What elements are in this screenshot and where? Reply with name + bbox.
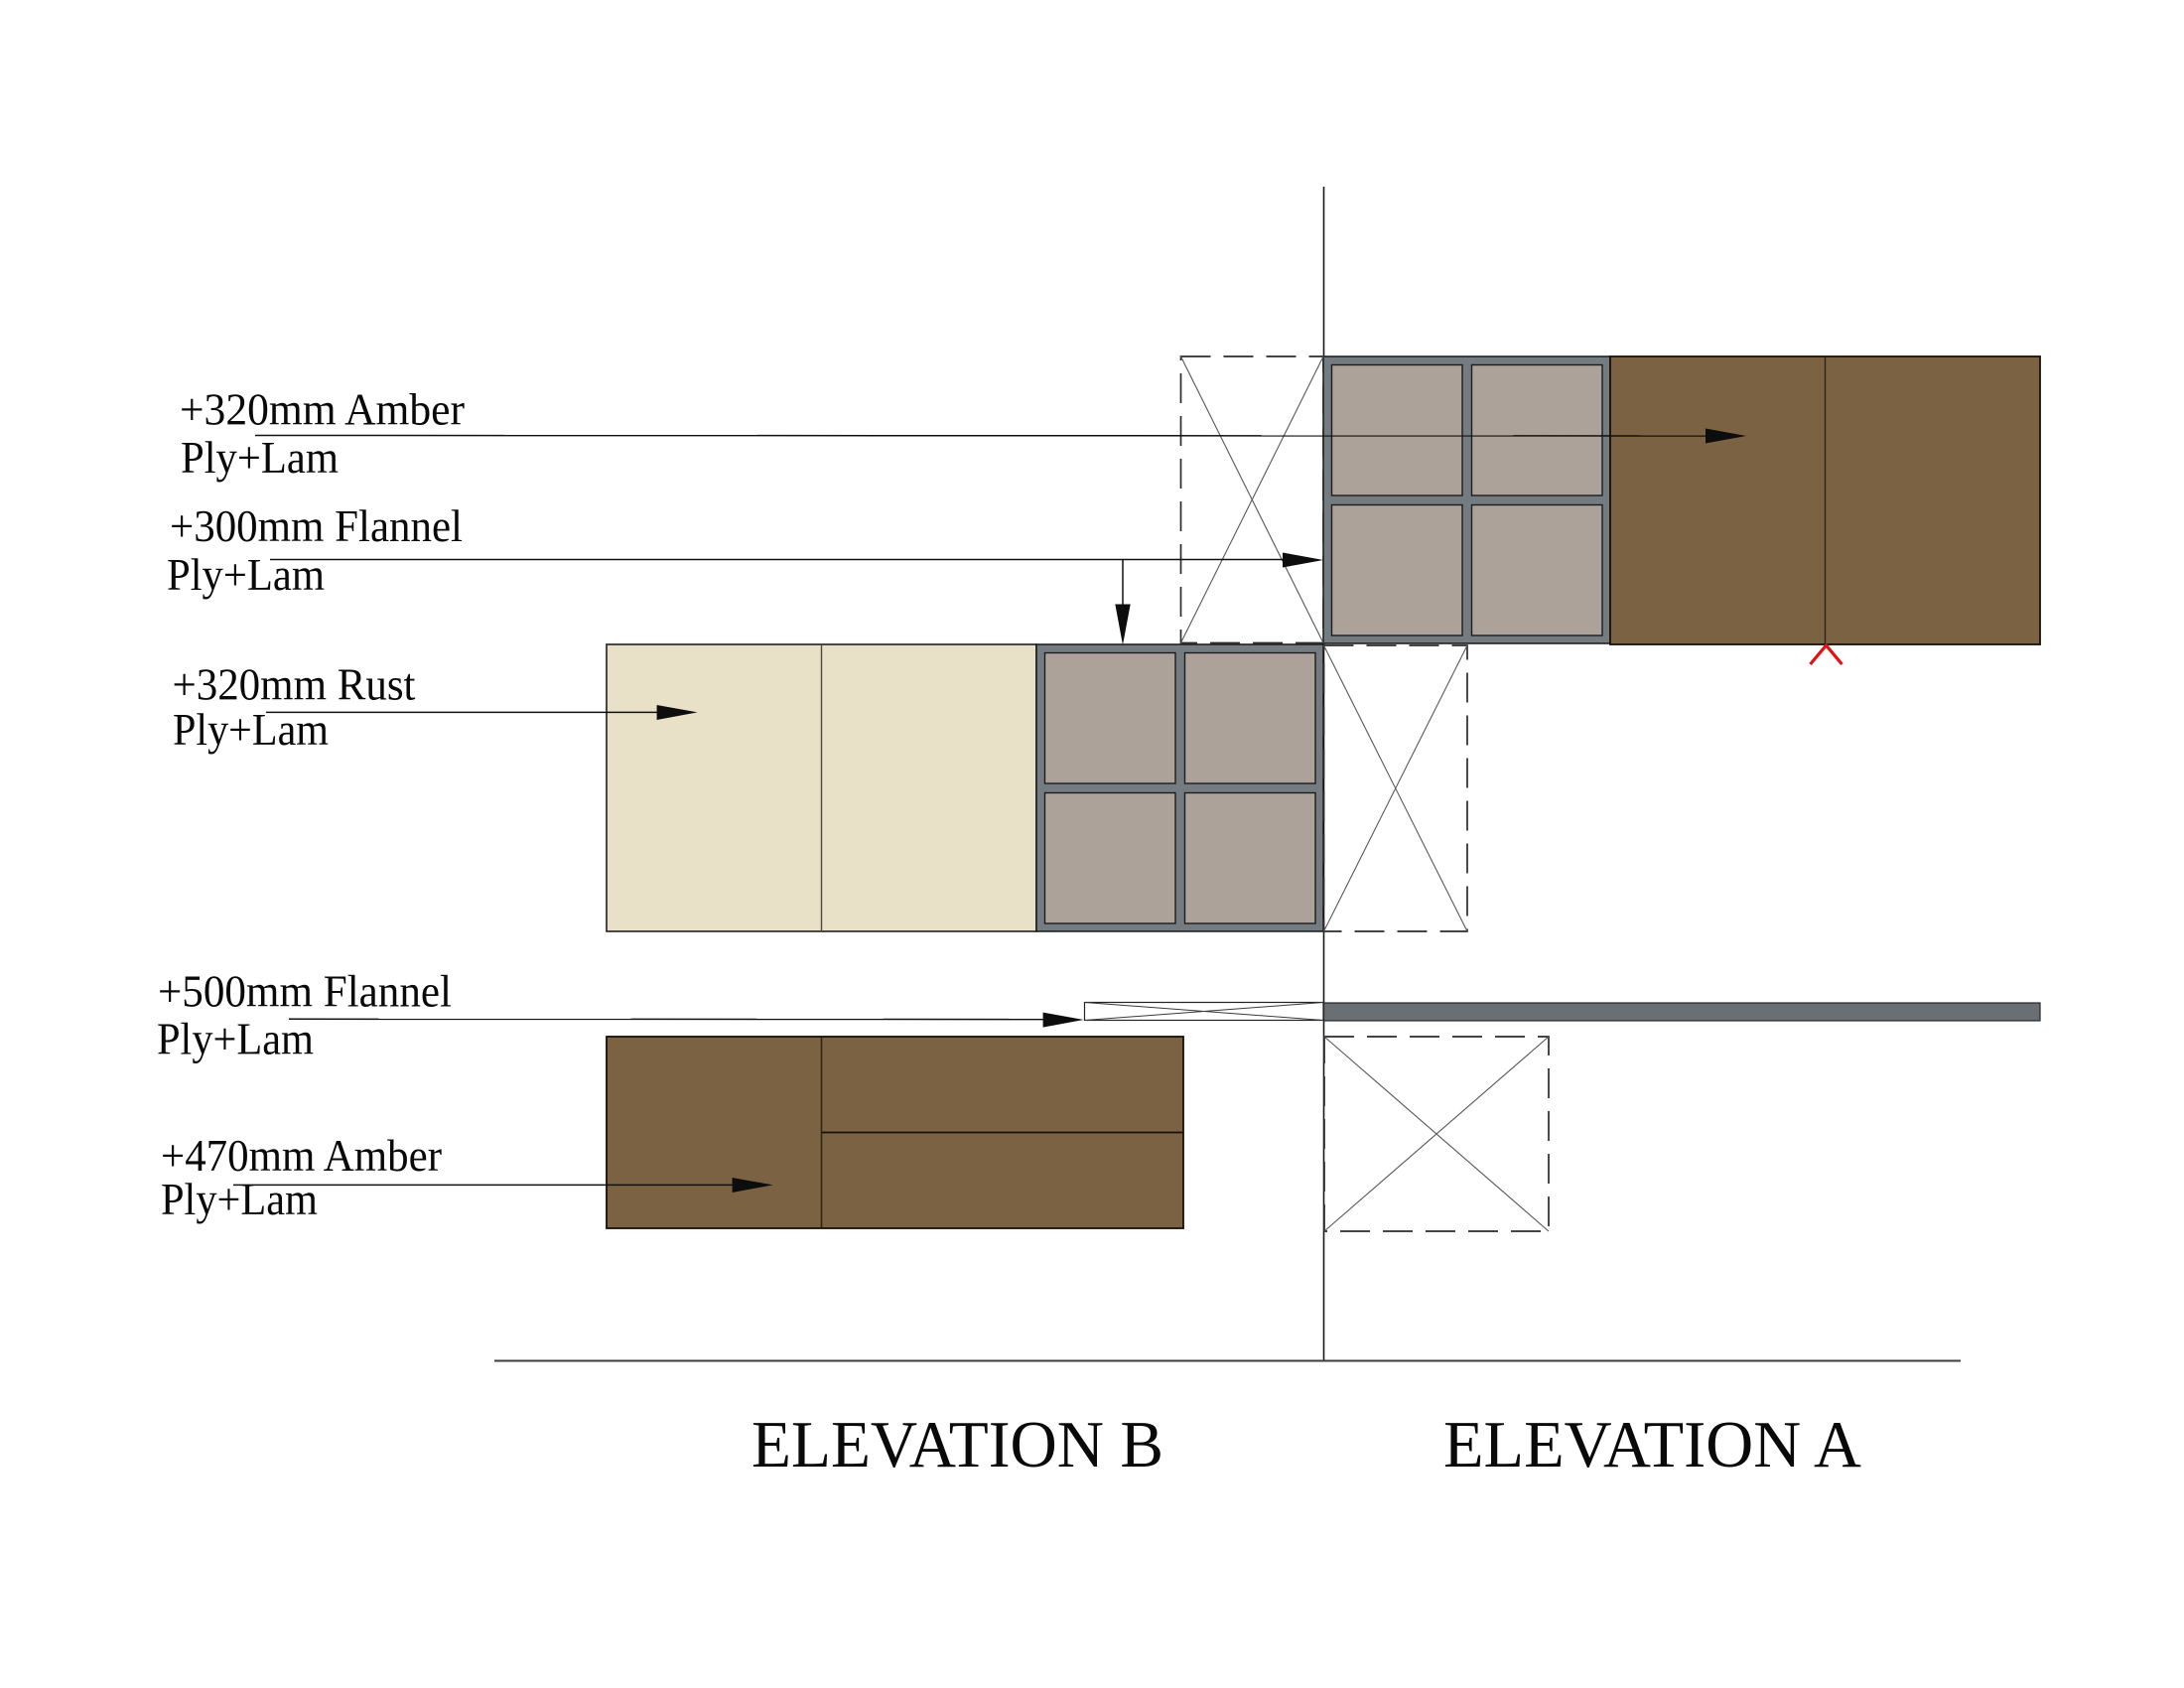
svg-text:+500mm Flannel: +500mm Flannel: [158, 967, 452, 1017]
svg-text:Ply+Lam: Ply+Lam: [161, 1175, 318, 1224]
svg-text:ELEVATION A: ELEVATION A: [1443, 1408, 1861, 1481]
svg-text:+320mm Rust: +320mm Rust: [173, 660, 416, 710]
svg-text:Ply+Lam: Ply+Lam: [167, 550, 325, 600]
svg-text:+300mm Flannel: +300mm Flannel: [170, 501, 463, 551]
svg-text:Ply+Lam: Ply+Lam: [173, 705, 329, 755]
svg-text:+470mm Amber: +470mm Amber: [161, 1131, 442, 1181]
svg-text:Ply+Lam: Ply+Lam: [157, 1015, 314, 1064]
svg-text:Ply+Lam: Ply+Lam: [181, 433, 339, 483]
svg-text:+320mm Amber: +320mm Amber: [180, 385, 465, 435]
svg-text:ELEVATION B: ELEVATION B: [751, 1408, 1163, 1481]
